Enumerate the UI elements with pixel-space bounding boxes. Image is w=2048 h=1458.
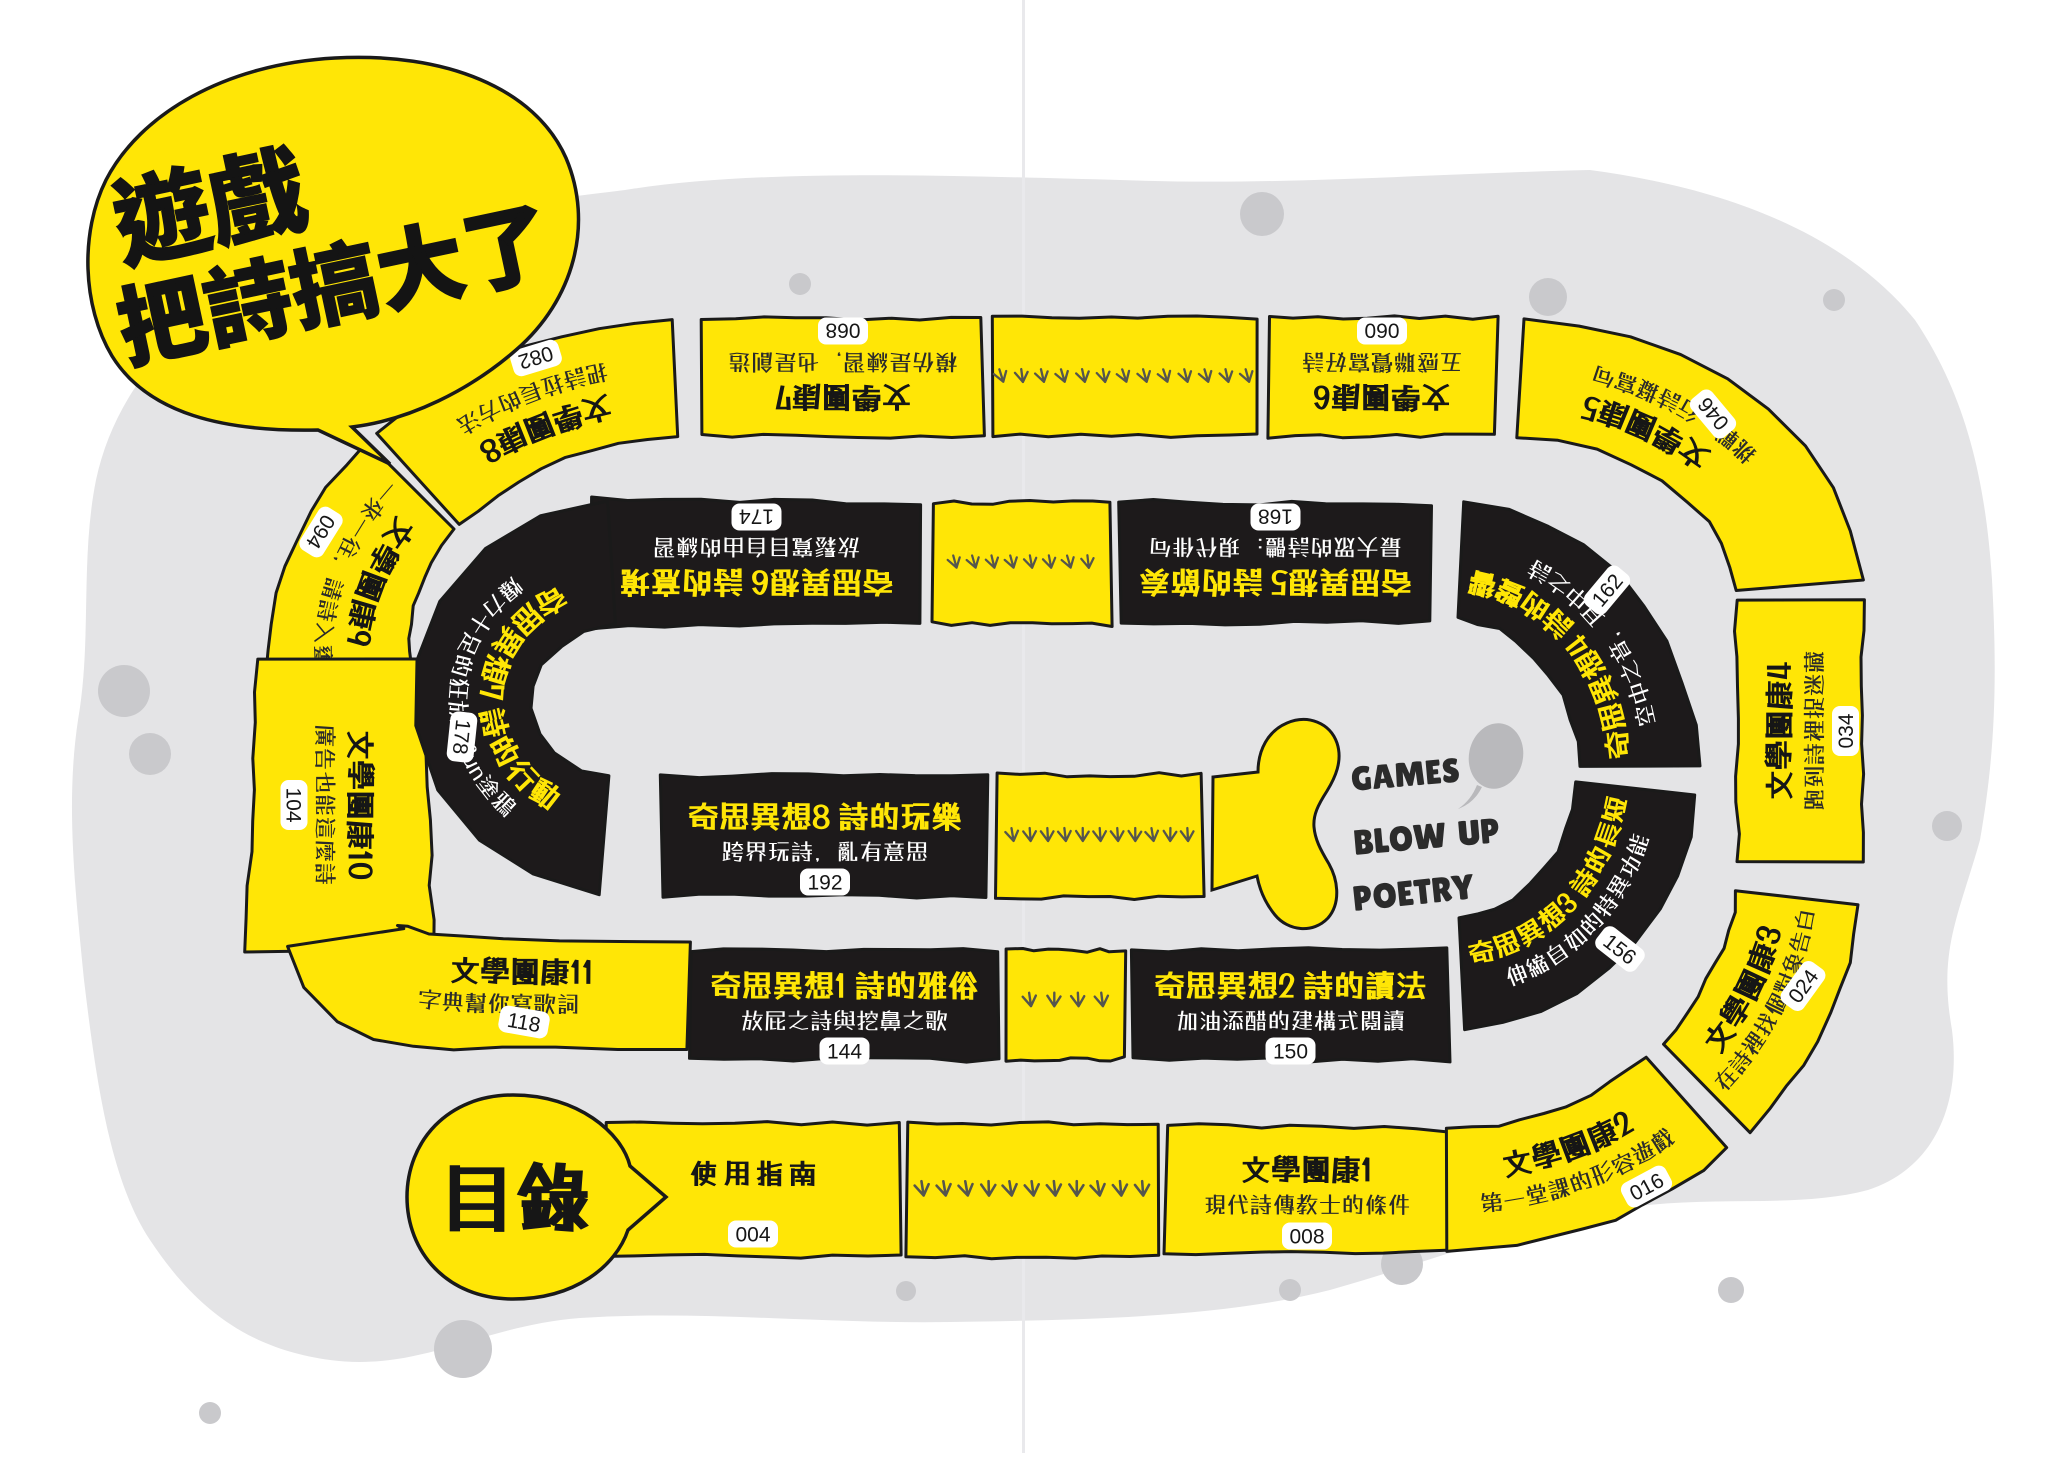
svg-text:192: 192 bbox=[807, 872, 842, 895]
svg-text:004: 004 bbox=[735, 1224, 770, 1247]
svg-text:168: 168 bbox=[1258, 505, 1293, 528]
svg-text:060: 060 bbox=[1364, 319, 1399, 342]
svg-text:104: 104 bbox=[282, 787, 305, 822]
svg-text:178: 178 bbox=[448, 718, 475, 755]
svg-text:150: 150 bbox=[1273, 1041, 1308, 1064]
svg-text:068: 068 bbox=[825, 319, 860, 342]
svg-text:144: 144 bbox=[827, 1041, 862, 1064]
svg-text:174: 174 bbox=[739, 505, 774, 528]
svg-text:008: 008 bbox=[1289, 1226, 1324, 1249]
svg-text:034: 034 bbox=[1835, 713, 1858, 748]
